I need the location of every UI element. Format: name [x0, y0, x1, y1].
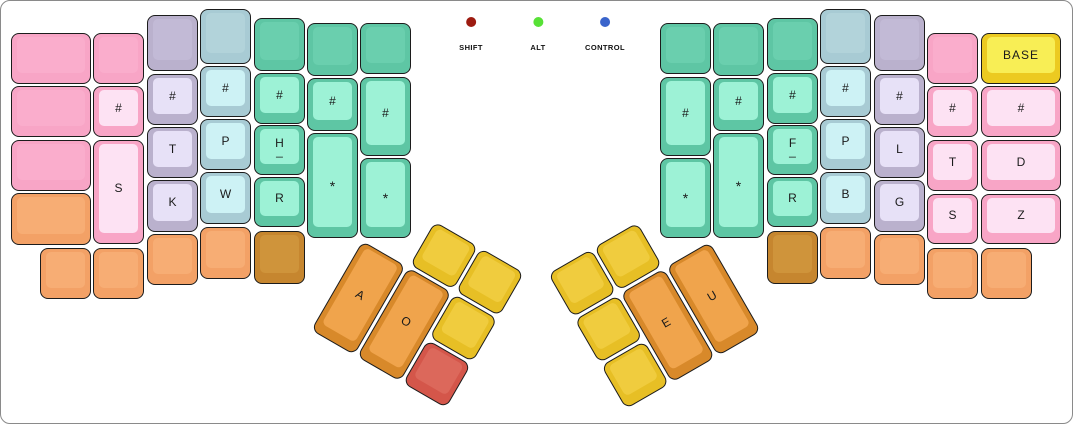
keycap-top-face	[773, 22, 812, 60]
key-label: O	[399, 314, 414, 330]
keycap-top-face: #	[826, 70, 865, 106]
key-r7-base[interactable]: BASE	[981, 33, 1061, 84]
key-r2-r1-blank[interactable]	[713, 23, 764, 76]
key-r6-bottom-blank[interactable]	[927, 248, 978, 299]
key-r7-d[interactable]: D	[981, 140, 1061, 191]
key-l4-bottom-blank[interactable]	[200, 227, 251, 279]
keycap-top-face: #	[666, 81, 705, 145]
key-label: P	[841, 135, 849, 148]
keycap-top-face: #	[99, 90, 138, 126]
key-r3-number[interactable]: #	[767, 73, 818, 124]
keycap-top-face: *	[313, 137, 352, 227]
keycap-top-face	[582, 301, 632, 350]
keycap-top-face	[933, 252, 972, 288]
key-label: W	[220, 188, 231, 201]
keycap-top-face: L	[880, 131, 919, 167]
key-r7-bottom-blank[interactable]	[981, 248, 1032, 299]
keycap-top-face: R	[773, 181, 812, 216]
key-r7-z[interactable]: Z	[981, 194, 1061, 244]
keycap-top-face	[313, 27, 352, 65]
key-r3-r1-blank[interactable]	[767, 18, 818, 71]
keycap-top-face	[413, 346, 463, 395]
key-label: T	[169, 143, 176, 156]
keycap-top-face: #	[206, 70, 245, 106]
keycap-top-face	[601, 229, 651, 278]
key-sublabel: _	[789, 146, 796, 156]
key-l3-r1-blank[interactable]	[147, 15, 198, 71]
keycap-top-face: #	[773, 77, 812, 113]
key-label: #	[842, 82, 849, 95]
key-label: G	[895, 196, 904, 209]
key-label: U	[705, 288, 719, 304]
key-r3-r[interactable]: R	[767, 177, 818, 227]
keycap-top-face	[880, 238, 919, 274]
keycap-top-face: H_	[260, 129, 299, 164]
keycap-top-face	[440, 300, 490, 349]
alt-indicator-label: ALT	[530, 43, 545, 52]
keycap-top-face: #	[153, 78, 192, 114]
key-label: A	[353, 287, 366, 302]
key-r5-number[interactable]: #	[874, 74, 925, 125]
keycap-top-face: S	[99, 144, 138, 233]
key-label: #	[682, 107, 689, 120]
keycap-top-face: R	[260, 181, 299, 216]
key-l5-r[interactable]: R	[254, 177, 305, 227]
key-r3-f[interactable]: F_	[767, 125, 818, 175]
keycap-top-face: K	[153, 184, 192, 221]
key-label: #	[222, 82, 229, 95]
keycap-top-face: BASE	[987, 37, 1055, 73]
keycap-top-face: F_	[773, 129, 812, 164]
key-l6-r1-blank[interactable]	[307, 23, 358, 76]
key-label: R	[788, 192, 797, 205]
key-l1-bottom-blank[interactable]	[40, 248, 91, 299]
key-label: *	[330, 180, 335, 193]
keycap-top-face: #	[987, 90, 1055, 126]
key-l4-number[interactable]: #	[200, 66, 251, 117]
key-label: R	[275, 192, 284, 205]
key-label: B	[841, 188, 849, 201]
key-label: *	[736, 180, 741, 193]
key-label: L	[896, 143, 903, 156]
key-l5-r1-blank[interactable]	[254, 18, 305, 71]
key-label: #	[329, 95, 336, 108]
keycap-top-face	[206, 231, 245, 268]
keycap-top-face: Z	[987, 198, 1055, 233]
key-label: S	[948, 209, 956, 222]
keycap-top-face	[466, 254, 516, 303]
key-l7-r1-blank[interactable]	[360, 23, 411, 74]
key-l5-h[interactable]: H_	[254, 125, 305, 175]
key-r4-r1-blank[interactable]	[820, 9, 871, 64]
key-r5-r1-blank[interactable]	[874, 15, 925, 71]
key-r4-bottom-blank[interactable]	[820, 227, 871, 279]
keycap-top-face	[17, 37, 85, 73]
key-l3-k[interactable]: K	[147, 180, 198, 232]
keycap-top-face	[99, 252, 138, 288]
keycap-top-face: #	[366, 81, 405, 145]
keycap-top-face	[719, 27, 758, 65]
keycap-top-face: #	[260, 77, 299, 113]
keycap-top-face	[206, 13, 245, 53]
key-label: D	[1017, 156, 1026, 169]
key-l6-number[interactable]: #	[307, 78, 358, 131]
key-label: S	[114, 182, 122, 195]
key-l2-r1-blank[interactable]	[93, 33, 144, 84]
control-indicator-label: CONTROL	[585, 43, 625, 52]
keycap-top-face: B	[826, 176, 865, 213]
keycap-top-face: T	[153, 131, 192, 167]
key-l1-r1-blank[interactable]	[11, 33, 91, 84]
keycap-top-face	[773, 235, 812, 273]
key-label: E	[659, 315, 672, 330]
keycap-top-face	[260, 22, 299, 60]
key-label: #	[1018, 102, 1025, 115]
keycap-top-face: P	[206, 123, 245, 159]
key-label: #	[735, 95, 742, 108]
shift-indicator-dot	[466, 17, 476, 27]
key-l2-number[interactable]: #	[93, 86, 144, 137]
key-l3-t[interactable]: T	[147, 127, 198, 178]
keycap-top-face	[260, 235, 299, 273]
key-r4-number[interactable]: #	[820, 66, 871, 117]
key-label: #	[276, 89, 283, 102]
keycap-top-face	[99, 37, 138, 73]
keycap-top-face: T	[933, 144, 972, 180]
key-r1-number[interactable]: #	[660, 77, 711, 156]
key-l3-number[interactable]: #	[147, 74, 198, 125]
keycap-top-face	[826, 231, 865, 268]
control-indicator-dot	[600, 17, 610, 27]
legend-control: CONTROL	[585, 17, 625, 52]
keycap-top-face	[153, 238, 192, 274]
shift-indicator-label: SHIFT	[459, 43, 483, 52]
key-l1-r3-blank[interactable]	[11, 140, 91, 191]
alt-indicator-dot	[533, 17, 543, 27]
key-label: P	[221, 135, 229, 148]
key-label: #	[115, 102, 122, 115]
key-label: #	[789, 89, 796, 102]
keycap-top-face: #	[313, 82, 352, 120]
key-r4-p[interactable]: P	[820, 119, 871, 170]
legend-shift: SHIFT	[459, 17, 483, 52]
key-l5-bottom-blank[interactable]	[254, 231, 305, 284]
key-label: K	[168, 196, 176, 209]
key-r2-star[interactable]: *	[713, 133, 764, 238]
keycap-top-face: D	[987, 144, 1055, 180]
legend-alt: ALT	[530, 17, 545, 52]
keycap-top-face	[555, 255, 605, 304]
keycap-top-face	[17, 197, 85, 234]
key-label: Z	[1017, 209, 1024, 222]
key-label: BASE	[1003, 49, 1039, 62]
key-l6-star[interactable]: *	[307, 133, 358, 238]
key-r5-bottom-blank[interactable]	[874, 234, 925, 285]
keyboard-layout-canvas: SHIFT ALT CONTROL #S#TK#PW#H_R#*#*#*#*#F…	[0, 0, 1073, 424]
key-label: #	[896, 90, 903, 103]
keycap-top-face: S	[933, 198, 972, 233]
keycap-top-face: G	[880, 184, 919, 221]
key-l5-number[interactable]: #	[254, 73, 305, 124]
key-label: #	[169, 90, 176, 103]
keycap-top-face	[826, 13, 865, 53]
key-label: #	[949, 102, 956, 115]
keycap-top-face	[153, 19, 192, 60]
key-r3-bottom-blank[interactable]	[767, 231, 818, 284]
keycap-top-face: #	[880, 78, 919, 114]
keycap-top-face	[987, 252, 1026, 288]
key-label: T	[949, 156, 956, 169]
keycap-top-face: #	[719, 82, 758, 120]
key-r2-number[interactable]: #	[713, 78, 764, 131]
key-sublabel: _	[276, 146, 283, 156]
key-r6-t[interactable]: T	[927, 140, 978, 191]
keycap-top-face	[46, 252, 85, 288]
key-l7-number[interactable]: #	[360, 77, 411, 156]
key-label: #	[382, 107, 389, 120]
keycap-top-face	[17, 144, 85, 180]
keycap-top-face: *	[719, 137, 758, 227]
key-l4-r1-blank[interactable]	[200, 9, 251, 64]
key-l2-s[interactable]: S	[93, 140, 144, 244]
keycap-top-face	[880, 19, 919, 60]
keycap-top-face	[933, 37, 972, 73]
key-l1-r4-blank[interactable]	[11, 193, 91, 245]
keycap-top-face: W	[206, 176, 245, 213]
keycap-top-face	[366, 27, 405, 63]
key-r5-l[interactable]: L	[874, 127, 925, 178]
key-l2-bottom-blank[interactable]	[93, 248, 144, 299]
key-r4-b[interactable]: B	[820, 172, 871, 224]
key-l1-r2-blank[interactable]	[11, 86, 91, 137]
keycap-top-face: P	[826, 123, 865, 159]
keycap-top-face	[421, 228, 471, 277]
key-l3-bottom-blank[interactable]	[147, 234, 198, 285]
key-r5-g[interactable]: G	[874, 180, 925, 232]
keycap-top-face: #	[933, 90, 972, 126]
key-r6-r1-blank[interactable]	[927, 33, 978, 84]
key-l4-p[interactable]: P	[200, 119, 251, 170]
keycap-top-face	[666, 27, 705, 63]
key-r1-r1-blank[interactable]	[660, 23, 711, 74]
key-r6-number[interactable]: #	[927, 86, 978, 137]
keycap-top-face	[608, 347, 658, 396]
key-l4-w[interactable]: W	[200, 172, 251, 224]
key-r6-s[interactable]: S	[927, 194, 978, 244]
keycap-top-face	[17, 90, 85, 126]
key-r7-number[interactable]: #	[981, 86, 1061, 137]
